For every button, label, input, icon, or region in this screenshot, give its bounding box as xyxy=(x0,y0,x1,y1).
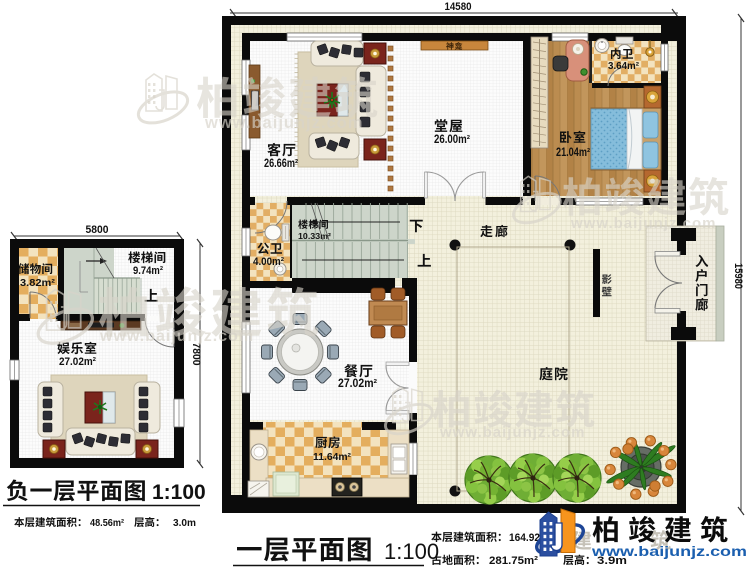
svg-text:5800: 5800 xyxy=(86,224,109,236)
svg-text:10.33m²: 10.33m² xyxy=(298,231,331,241)
svg-text:48.56m²: 48.56m² xyxy=(90,517,124,529)
svg-text:www.baijunjz.com: www.baijunjz.com xyxy=(439,424,585,441)
svg-text:4.00m²: 4.00m² xyxy=(253,256,284,268)
svg-text:www.baijunjz.com: www.baijunjz.com xyxy=(570,215,716,232)
svg-text:1:100: 1:100 xyxy=(384,539,439,564)
svg-text:21.04m²: 21.04m² xyxy=(556,147,590,159)
svg-text:27.02m²: 27.02m² xyxy=(59,356,96,368)
svg-text:www.baijunjz.com: www.baijunjz.com xyxy=(204,114,363,132)
svg-text:1:100: 1:100 xyxy=(152,481,206,504)
svg-text:164.92: 164.92 xyxy=(509,532,540,544)
svg-text:26.66m²: 26.66m² xyxy=(264,158,298,170)
svg-text:15980: 15980 xyxy=(732,263,744,289)
svg-text:281.75m²: 281.75m² xyxy=(489,555,538,567)
svg-text:3.82m²: 3.82m² xyxy=(20,277,56,289)
svg-text:14580: 14580 xyxy=(445,1,472,13)
svg-text:26.00m²: 26.00m² xyxy=(434,134,470,146)
svg-text:7800: 7800 xyxy=(190,343,202,366)
svg-text:27.02m²: 27.02m² xyxy=(338,378,377,390)
svg-text:9.74m²: 9.74m² xyxy=(133,265,163,277)
svg-text:www.baijunjz.com: www.baijunjz.com xyxy=(591,543,747,559)
svg-text:11.64m²: 11.64m² xyxy=(313,451,351,463)
svg-text:3.64m²: 3.64m² xyxy=(608,60,639,72)
svg-text:www.baijunjz.com: www.baijunjz.com xyxy=(99,328,254,345)
svg-text:3.0m: 3.0m xyxy=(173,517,196,529)
